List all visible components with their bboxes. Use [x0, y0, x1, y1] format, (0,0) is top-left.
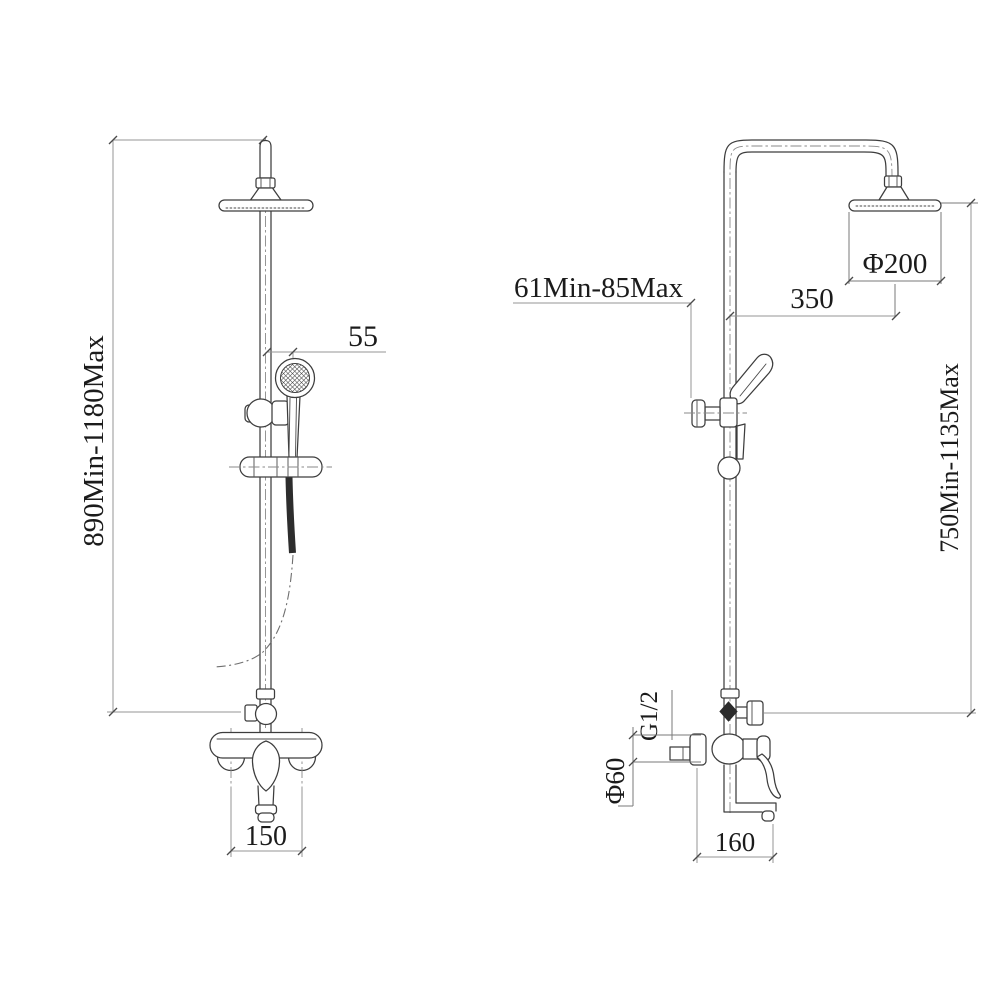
dim-flange-diameter-label: Φ60 [600, 758, 630, 805]
dim-hand-shower-offset: 55 [263, 320, 386, 361]
mixer-body-side [670, 734, 780, 821]
hand-shower-grip-side [737, 424, 745, 459]
handle-base [743, 739, 758, 759]
drawing-sheet: 890Min-1180Max 55 [0, 0, 1000, 1000]
diverter-side [720, 689, 763, 725]
valve-body [712, 734, 746, 764]
spout-front [258, 786, 259, 806]
hand-shower-spray-face [281, 364, 310, 393]
dim-bracket-range: 61Min-85Max [513, 272, 695, 398]
dim-inlet-thread: G1/2 [636, 690, 672, 741]
dim-front-height-label: 890Min-1180Max [78, 335, 110, 547]
holder-clamp [272, 401, 289, 425]
riser-pipe-side [724, 140, 898, 735]
wall-flange [690, 734, 706, 765]
dim-spout-reach-label: 160 [715, 827, 756, 857]
dim-head-diameter: Φ200 [845, 203, 978, 316]
ball-joint-side [718, 457, 740, 479]
dim-front-height: 890Min-1180Max [78, 136, 267, 716]
dim-head-reach: 350 [726, 283, 900, 320]
diverter-valve [720, 702, 737, 721]
holder-clamp-side [720, 398, 737, 427]
holder-knob-side [692, 400, 705, 427]
shower-hose [289, 477, 293, 553]
front-view: 890Min-1180Max 55 [78, 136, 386, 857]
diverter-front [245, 689, 277, 725]
shower-hose-curve [214, 555, 293, 667]
dim-hand-shower-offset-label: 55 [348, 320, 378, 353]
holder-shaft-side [705, 407, 720, 420]
technical-drawing: 890Min-1180Max 55 [0, 0, 1000, 1000]
dim-mount-spacing-label: 150 [245, 821, 287, 852]
dim-inlet-thread-label: G1/2 [636, 691, 663, 741]
dim-head-diameter-label: Φ200 [863, 248, 928, 280]
diverter-knob-side [747, 701, 763, 725]
mixer-body-front [210, 728, 322, 822]
spout-front [273, 786, 274, 806]
hand-shower-side [684, 354, 773, 479]
inlet-nipple [670, 747, 690, 760]
holder-pivot [247, 399, 275, 427]
side-view: Φ200 350 61Min-85Max [513, 140, 978, 863]
dim-mount-spacing: 150 [227, 792, 306, 857]
lever-handle-side [757, 754, 780, 798]
rain-shower-head-front [219, 141, 313, 212]
slide-bracket-front [229, 457, 332, 477]
spout-outlet [762, 811, 774, 821]
dim-head-reach-label: 350 [790, 283, 834, 315]
dim-bracket-range-label: 61Min-85Max [514, 272, 684, 304]
dim-side-height-label: 750Min-1135Max [935, 363, 964, 553]
hand-shower-front [245, 359, 315, 459]
lever-handle-front [252, 741, 279, 791]
rain-shower-head-side [849, 176, 941, 211]
